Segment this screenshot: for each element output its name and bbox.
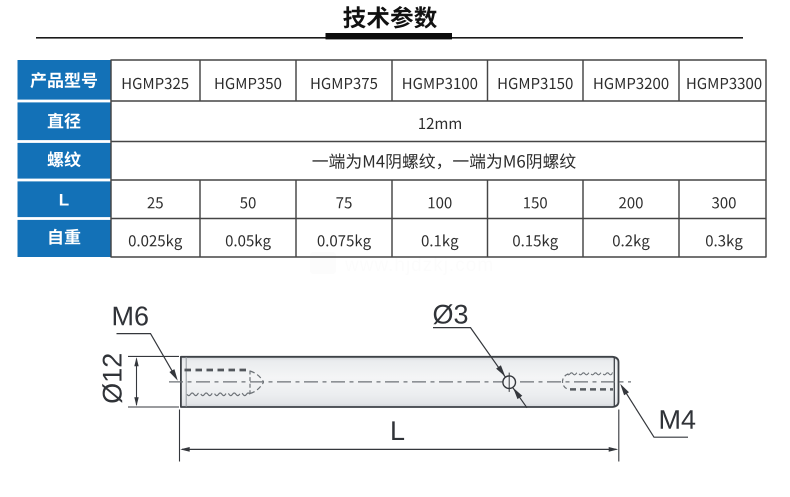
- svg-text:www.hjdzkj.com: www.hjdzkj.com: [344, 255, 494, 276]
- svg-text:L: L: [59, 191, 69, 210]
